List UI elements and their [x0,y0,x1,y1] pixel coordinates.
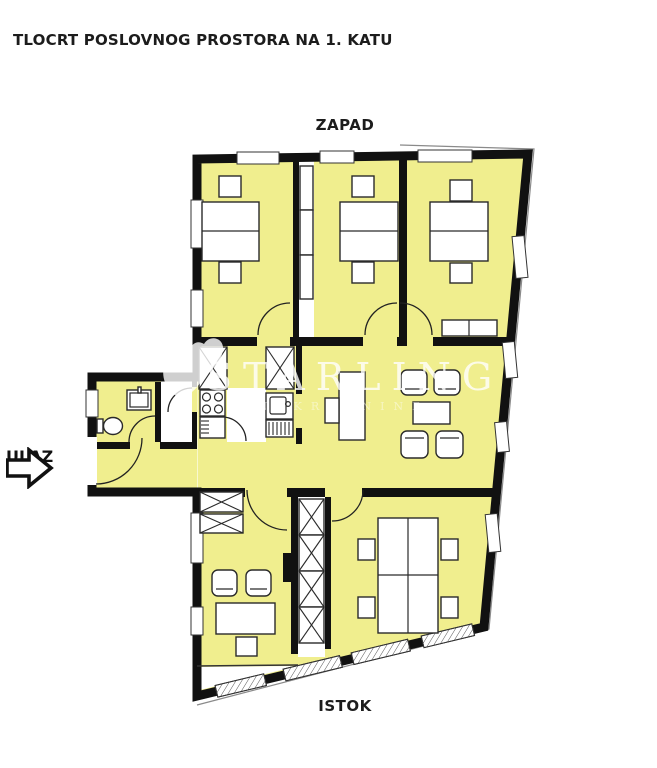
chair [450,180,472,201]
chair [219,176,241,197]
chair [219,262,241,283]
room-floor-edge [197,665,298,666]
chair [450,263,472,283]
watermark-brand: STARLING [206,355,503,399]
window [237,152,279,164]
chair [441,539,458,560]
toilet-tank [97,419,103,433]
shaft-cabinets [299,499,324,643]
armchair [246,570,271,596]
chair [358,597,375,618]
window [191,290,203,327]
armchair [401,431,428,458]
window [495,421,510,452]
floor-plan-page: TLOCRT POSLOVNOG PROSTORA NA 1. KATU ZAP… [0,0,657,768]
window [418,150,472,162]
floor-plan-svg: STARLING NEKRETNINE [0,0,657,768]
watermark-tagline: NEKRETNINE [258,400,429,413]
counter [200,417,225,438]
armchair [436,431,463,458]
chimney-block [283,553,298,582]
armchair [212,570,237,596]
shelf-unit [300,166,313,299]
window [191,607,203,635]
chair [352,262,374,283]
chair [441,597,458,618]
window [320,151,354,163]
chair [236,637,257,656]
window [86,390,98,417]
window [191,200,203,248]
entrance-door-gap [86,437,97,485]
chair [352,176,374,197]
toilet [104,418,123,435]
table [216,603,275,634]
chair [358,539,375,560]
